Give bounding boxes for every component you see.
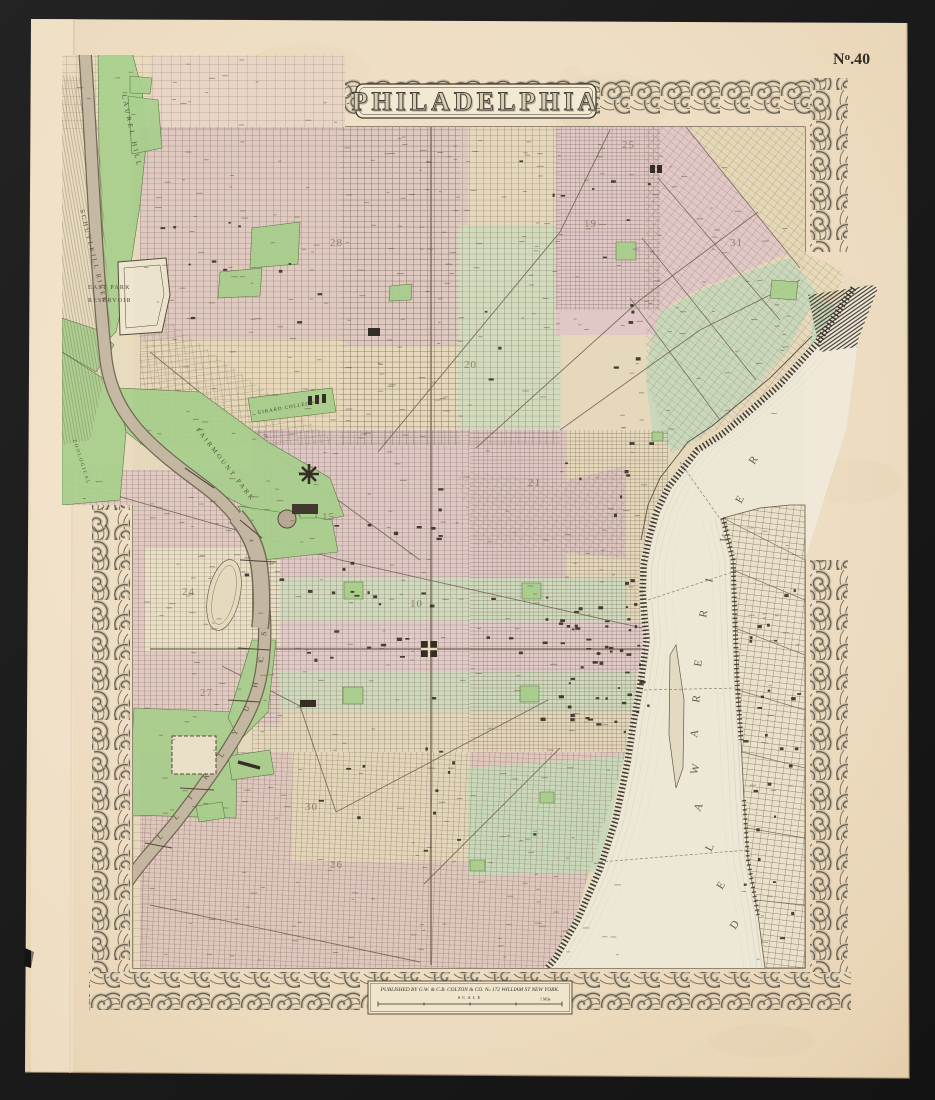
svg-text:PUBLISHED BY G.W. & C.B. COLTO: PUBLISHED BY G.W. & C.B. COLTON & CO. No…	[380, 987, 560, 993]
svg-text:No.40: No.40	[833, 51, 870, 68]
svg-text:1 Mile: 1 Mile	[540, 997, 551, 1002]
svg-text:SCALE: SCALE	[458, 995, 483, 1000]
svg-text:PHILADELPHIA: PHILADELPHIA	[352, 87, 601, 116]
